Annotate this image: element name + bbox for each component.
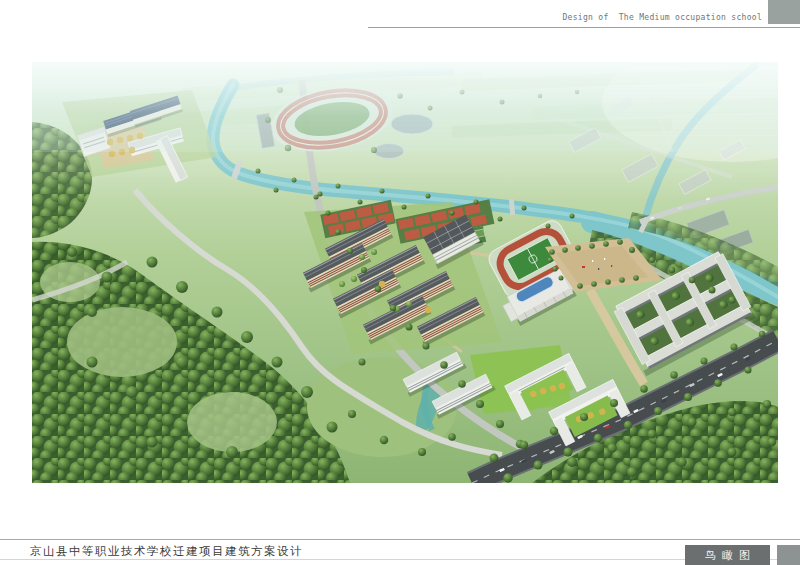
haze-tint xyxy=(32,62,778,152)
drawing-label: 鸟瞰图 xyxy=(699,548,756,563)
presentation-board: Design of The Medium occupation school xyxy=(0,0,800,565)
drawing-label-box: 鸟瞰图 xyxy=(685,545,770,565)
header-rule xyxy=(368,27,800,28)
footer-rule-bottom xyxy=(0,559,800,560)
footer-corner-block xyxy=(777,545,800,565)
aerial-rendering xyxy=(32,62,778,483)
project-title: 京山县中等职业技术学校迁建项目建筑方案设计 xyxy=(30,544,303,559)
plaza-sculpture xyxy=(582,266,585,268)
header-corner-block xyxy=(768,0,800,24)
header-title: Design of The Medium occupation school xyxy=(562,13,762,22)
footer-rule-top xyxy=(0,539,800,540)
